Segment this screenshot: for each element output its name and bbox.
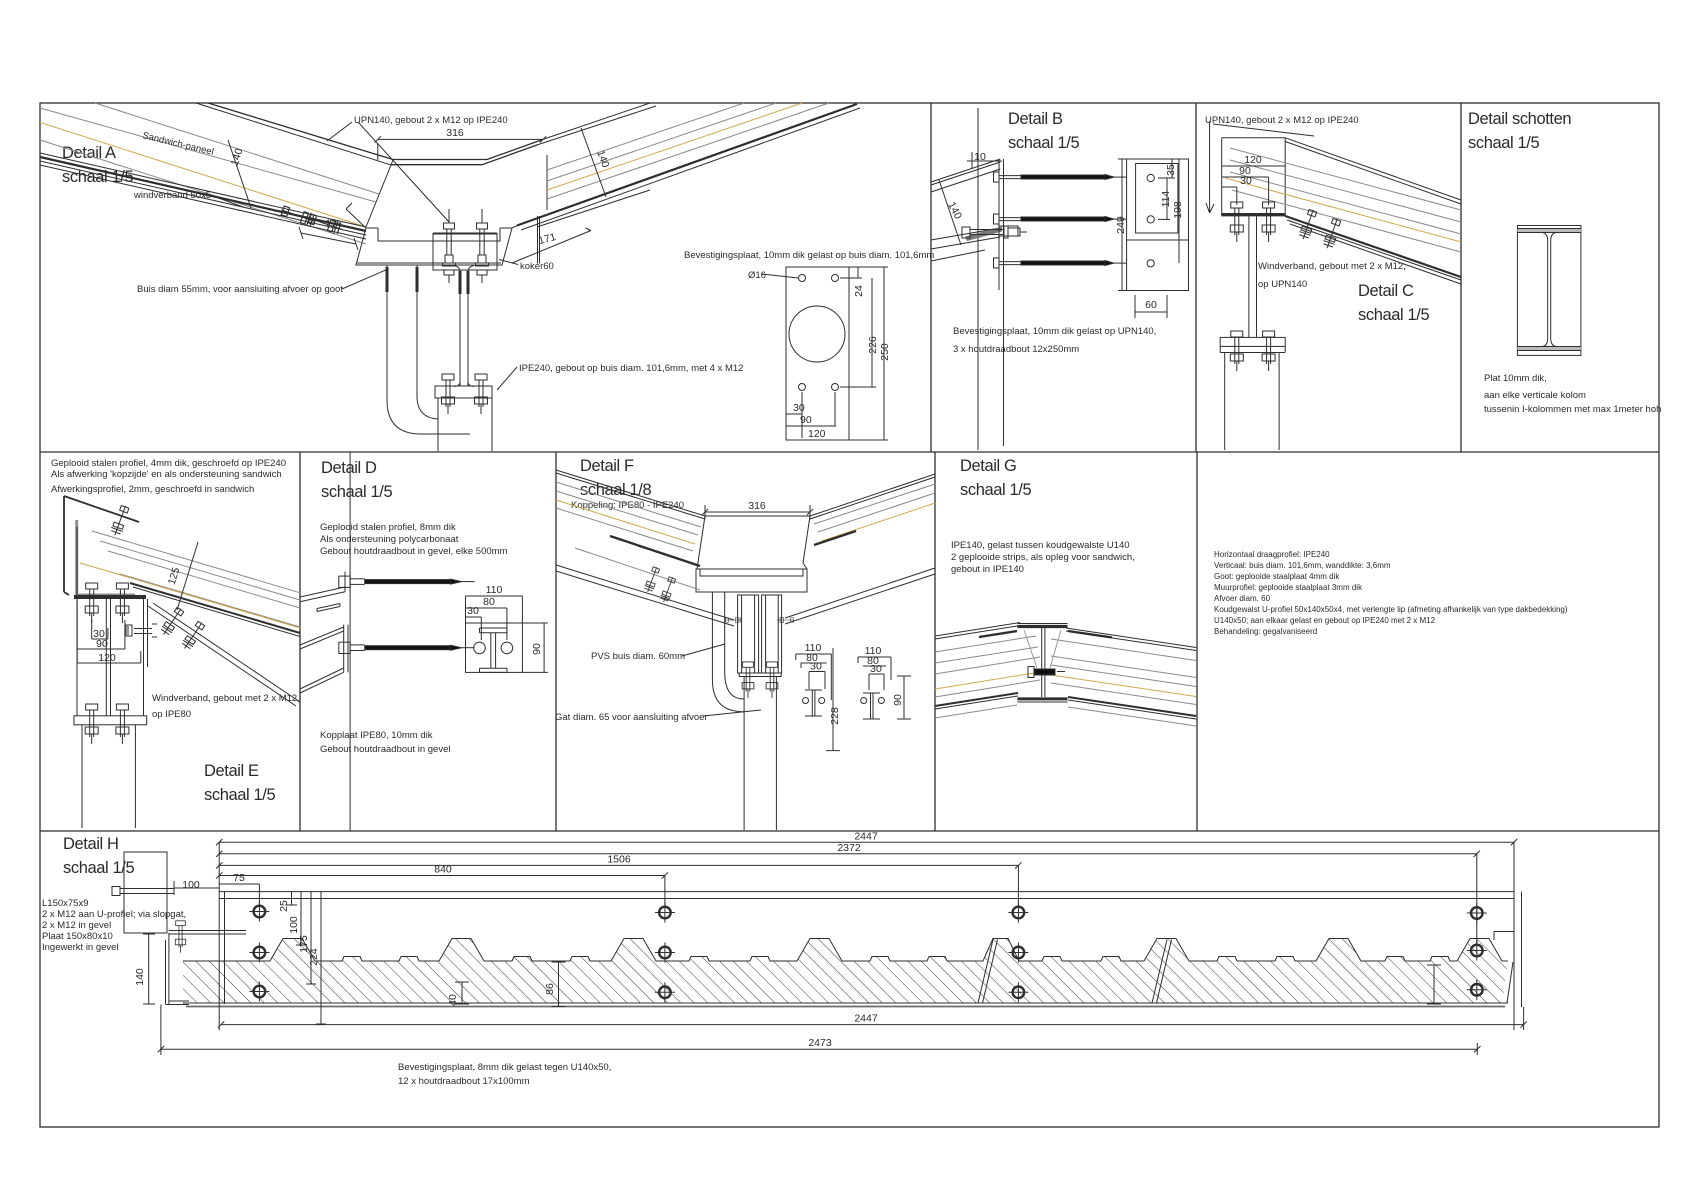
svg-text:2 x M12 in gevel: 2 x M12 in gevel	[42, 920, 111, 931]
svg-text:Gebout houtdraadbout in gevel: Gebout houtdraadbout in gevel	[320, 744, 450, 755]
svg-text:Plaat 150x80x10: Plaat 150x80x10	[42, 931, 113, 942]
svg-text:Detail C: Detail C	[1358, 282, 1414, 300]
svg-text:Als afwerking 'kopzijde' en al: Als afwerking 'kopzijde' en als onderste…	[51, 469, 282, 480]
svg-text:Gat diam. 65 voor aansluiting: Gat diam. 65 voor aansluiting afvoer	[555, 712, 708, 723]
svg-text:Koudgewalst U-profiel 50x140x5: Koudgewalst U-profiel 50x140x50x4, met v…	[1214, 605, 1568, 614]
svg-text:Verticaal: buis diam. 101,6mm,: Verticaal: buis diam. 101,6mm, wanddikte…	[1214, 561, 1391, 570]
svg-text:Detail A: Detail A	[62, 144, 116, 162]
svg-text:120: 120	[98, 652, 116, 664]
svg-text:90: 90	[531, 643, 543, 655]
svg-text:Bevestigingsplaat, 10mm dik ge: Bevestigingsplaat, 10mm dik gelast op UP…	[953, 326, 1156, 337]
svg-text:75: 75	[233, 872, 245, 884]
svg-text:Bevestigingsplaat, 8mm dik gel: Bevestigingsplaat, 8mm dik gelast tegen …	[398, 1062, 611, 1073]
svg-text:tussenin I-kolommen met max 1m: tussenin I-kolommen met max 1meter hoh	[1484, 404, 1661, 415]
svg-text:Detail B: Detail B	[1008, 110, 1063, 128]
svg-text:Ingewerkt in gevel: Ingewerkt in gevel	[42, 942, 119, 953]
svg-text:2 x M12 aan U-profiel; via slo: 2 x M12 aan U-profiel; via slopgat,	[42, 909, 186, 920]
svg-text:30: 30	[1240, 175, 1252, 187]
svg-text:windverband 50x5: windverband 50x5	[133, 190, 211, 201]
svg-text:gebout in IPE140: gebout in IPE140	[951, 564, 1024, 575]
svg-text:Detail D: Detail D	[321, 459, 377, 477]
svg-text:100: 100	[182, 879, 200, 891]
svg-text:120: 120	[808, 428, 826, 440]
svg-text:1506: 1506	[607, 854, 631, 866]
svg-text:40: 40	[447, 994, 459, 1006]
svg-text:30: 30	[870, 663, 882, 675]
svg-text:30: 30	[467, 605, 479, 617]
svg-text:25: 25	[278, 900, 290, 912]
svg-text:IPE240, gebout op buis diam. 1: IPE240, gebout op buis diam. 101,6mm, me…	[519, 363, 743, 374]
svg-text:2447: 2447	[854, 1013, 878, 1025]
svg-text:249: 249	[1115, 216, 1127, 234]
svg-text:Gebout houtdraadbout in gevel,: Gebout houtdraadbout in gevel, elke 500m…	[320, 546, 508, 557]
svg-text:30: 30	[793, 402, 805, 414]
svg-text:Kopplaat IPE80, 10mm dik: Kopplaat IPE80, 10mm dik	[320, 730, 433, 741]
svg-text:UPN140, gebout 2 x M12 op IPE2: UPN140, gebout 2 x M12 op IPE240	[354, 115, 508, 126]
svg-text:Afvoer diam. 60: Afvoer diam. 60	[1214, 594, 1271, 603]
svg-text:Buis diam 55mm, voor aansluiti: Buis diam 55mm, voor aansluiting afvoer …	[137, 284, 343, 295]
svg-text:schaal 1/5: schaal 1/5	[204, 786, 275, 804]
svg-text:30: 30	[810, 661, 822, 673]
svg-text:226: 226	[867, 336, 879, 354]
svg-text:3 x houtdraadbout 12x250mm: 3 x houtdraadbout 12x250mm	[953, 344, 1079, 355]
svg-text:L150x75x9: L150x75x9	[42, 898, 88, 909]
svg-text:Afwerkingsprofiel, 2mm, geschr: Afwerkingsprofiel, 2mm, geschroefd in sa…	[51, 484, 254, 495]
svg-text:10: 10	[974, 151, 986, 163]
svg-text:90: 90	[96, 638, 108, 650]
svg-text:Als ondersteuning polycarbonaa: Als ondersteuning polycarbonaat	[320, 534, 459, 545]
svg-text:op UPN140: op UPN140	[1258, 279, 1307, 290]
svg-text:2372: 2372	[837, 842, 861, 854]
svg-text:Horizontaal draagprofiel: IPE2: Horizontaal draagprofiel: IPE240	[1214, 550, 1330, 559]
svg-text:Geplooid stalen profiel, 4mm d: Geplooid stalen profiel, 4mm dik, geschr…	[51, 458, 286, 469]
svg-text:228: 228	[829, 707, 841, 725]
svg-text:316: 316	[748, 500, 766, 512]
svg-text:Behandeling: gegalvaniseerd: Behandeling: gegalvaniseerd	[1214, 627, 1317, 636]
svg-text:Detail E: Detail E	[204, 762, 259, 780]
svg-text:UPN140, gebout 2 x M12 op IPE2: UPN140, gebout 2 x M12 op IPE240	[1205, 115, 1359, 126]
svg-text:60: 60	[1145, 299, 1157, 311]
svg-text:224: 224	[308, 948, 320, 966]
svg-text:80: 80	[483, 596, 495, 608]
svg-text:12 x houtdraadbout 17x100mm: 12 x houtdraadbout 17x100mm	[398, 1076, 530, 1087]
svg-text:Bevestigingsplaat, 10mm dik ge: Bevestigingsplaat, 10mm dik gelast op bu…	[684, 250, 934, 261]
svg-text:koker60: koker60	[520, 261, 554, 272]
svg-text:250: 250	[879, 343, 891, 361]
svg-text:Goot: geplooide staalplaat 4mm: Goot: geplooide staalplaat 4mm dik	[1214, 572, 1340, 581]
svg-text:schaal 1/5: schaal 1/5	[960, 481, 1031, 499]
svg-text:U140x50; aan elkaar gelast en: U140x50; aan elkaar gelast en gebout op …	[1214, 616, 1436, 625]
svg-text:schaal 1/5: schaal 1/5	[1468, 134, 1539, 152]
svg-text:op IPE80: op IPE80	[152, 709, 191, 720]
svg-text:schaal 1/5: schaal 1/5	[321, 483, 392, 501]
svg-text:316: 316	[446, 127, 464, 139]
svg-text:2447: 2447	[854, 831, 878, 843]
svg-text:Geplooid stalen profiel, 8mm d: Geplooid stalen profiel, 8mm dik	[320, 522, 456, 533]
svg-text:2473: 2473	[808, 1037, 832, 1049]
svg-text:198: 198	[1172, 201, 1184, 219]
svg-text:2 geplooide strips, als opleg: 2 geplooide strips, als opleg voor sandw…	[951, 552, 1135, 563]
svg-text:110: 110	[486, 584, 503, 596]
svg-text:100: 100	[288, 916, 300, 934]
svg-text:schaal 1/5: schaal 1/5	[1358, 306, 1429, 324]
svg-text:Detail G: Detail G	[960, 457, 1016, 475]
svg-text:840: 840	[434, 864, 452, 876]
svg-text:24: 24	[853, 285, 865, 297]
svg-text:Koppeling: IPE80 - IPE240: Koppeling: IPE80 - IPE240	[571, 500, 684, 511]
svg-text:schaal 1/5: schaal 1/5	[1008, 134, 1079, 152]
svg-text:Muurprofiel: geplooide staalpl: Muurprofiel: geplooide staalplaat 3mm di…	[1214, 583, 1363, 592]
svg-text:Windverband, gebout met 2 x M1: Windverband, gebout met 2 x M12,	[1258, 261, 1406, 272]
svg-text:aan elke verticale kolom: aan elke verticale kolom	[1484, 390, 1586, 401]
svg-text:Ø16: Ø16	[748, 270, 766, 281]
svg-text:Detail H: Detail H	[63, 835, 119, 853]
svg-text:114: 114	[1160, 190, 1172, 207]
svg-text:140: 140	[134, 968, 146, 986]
svg-text:Detail F: Detail F	[580, 457, 634, 475]
svg-text:35: 35	[1165, 164, 1177, 176]
svg-text:90: 90	[892, 694, 904, 706]
svg-text:Detail schotten: Detail schotten	[1468, 110, 1571, 128]
svg-text:Windverband, gebout met 2 x M1: Windverband, gebout met 2 x M12,	[152, 693, 300, 704]
svg-text:90: 90	[800, 414, 812, 426]
svg-text:Plat 10mm dik,: Plat 10mm dik,	[1484, 373, 1547, 384]
svg-text:PVS buis diam. 60mm: PVS buis diam. 60mm	[591, 651, 685, 662]
svg-text:IPE140, gelast tussen koudgewa: IPE140, gelast tussen koudgewalste U140	[951, 540, 1130, 551]
svg-text:86: 86	[544, 983, 556, 995]
